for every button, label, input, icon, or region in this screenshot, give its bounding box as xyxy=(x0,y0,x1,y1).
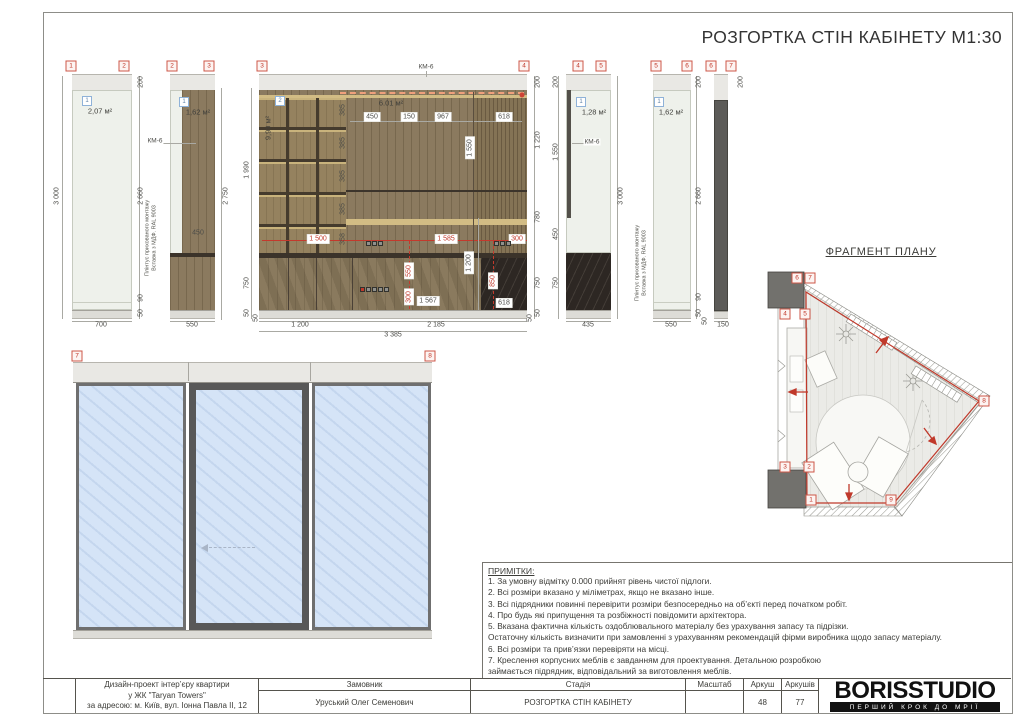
scale-value xyxy=(686,691,743,713)
elev78-sill xyxy=(73,630,432,639)
note-line: 4. Про будь які припущення та розбіжност… xyxy=(488,610,1012,621)
slide-direction-arrow-icon xyxy=(201,544,208,552)
slide-direction-line xyxy=(209,547,255,548)
elev78-ceiling xyxy=(73,362,432,383)
note-line: Остаточну кількість визначити при замовл… xyxy=(488,632,1012,643)
sheet-total-cell: Аркушів 77 xyxy=(781,679,818,713)
sheet-total-header: Аркушів xyxy=(782,679,818,691)
plan-wall-bottom xyxy=(804,507,902,516)
plan-title: ФРАГМЕНТ ПЛАНУ xyxy=(826,246,937,258)
project-info: Дизайн-проект інтер’єру квартири у ЖК "T… xyxy=(75,679,258,713)
elev23-lower-wood xyxy=(170,257,215,310)
note-line: 1. За умовну відмітку 0.000 прийнят ріве… xyxy=(488,576,1012,587)
elev34-slat-panel xyxy=(473,98,527,253)
note-line: 6. Всі розміри та прив’язки перевіряти н… xyxy=(488,644,1012,655)
elev78-ceiling-joint1 xyxy=(188,362,189,381)
elev23-base xyxy=(170,310,215,319)
elev34-led-shelf xyxy=(346,219,527,225)
notes-lines: 1. За умовну відмітку 0.000 прийнят ріве… xyxy=(488,576,1012,678)
client-cell: Замовник Уруський Олег Семенович xyxy=(258,679,470,713)
elev67-base xyxy=(714,311,728,319)
elev34-shelving xyxy=(259,98,346,256)
elev34-marble-block xyxy=(481,258,527,310)
plan-column-top xyxy=(768,272,804,308)
sheet-number-header: Аркуш xyxy=(744,679,781,691)
note-line: 3. Всі підрядники повинні перевірити роз… xyxy=(488,599,1012,610)
scale-cell: Масштаб xyxy=(685,679,743,713)
stage-cell: Стадія РОЗГОРТКА СТІН КАБІНЕТУ xyxy=(470,679,685,713)
project-line-2: у ЖК "Taryan Towers" xyxy=(76,691,258,702)
elev12-plinth-line xyxy=(73,302,131,303)
scale-header: Масштаб xyxy=(686,679,743,691)
project-line-1: Дизайн-проект інтер’єру квартири xyxy=(76,680,258,691)
studio-logo-name: BORISSTUDIO xyxy=(834,680,995,702)
notes-title: ПРИМІТКИ: xyxy=(488,566,1012,576)
plan-column-bottom xyxy=(768,470,806,508)
notes-block: ПРИМІТКИ: 1. За умовну відмітку 0.000 пр… xyxy=(482,562,1012,678)
window-panel-left xyxy=(76,383,186,630)
sheet-number-cell: Аркуш 48 xyxy=(743,679,781,713)
stage-value: РОЗГОРТКА СТІН КАБІНЕТУ xyxy=(471,691,685,713)
elev12-wall xyxy=(72,90,132,310)
window-panel-right xyxy=(312,383,431,630)
elev45-base xyxy=(566,310,611,319)
client-header: Замовник xyxy=(259,679,470,691)
page-title: РОЗГОРТКА СТІН КАБІНЕТУ М1:30 xyxy=(702,27,1002,48)
client-value: Уруський Олег Семенович xyxy=(259,691,470,713)
elev56-plinth-line xyxy=(654,302,690,303)
elev67-panel xyxy=(714,100,728,311)
studio-logo-tagline: ПЕРШИЙ КРОК ДО МРІЇ xyxy=(830,702,1000,712)
elev45-wall xyxy=(566,90,611,253)
studio-logo: BORISSTUDIO ПЕРШИЙ КРОК ДО МРІЇ xyxy=(818,679,1011,713)
elev78-ceiling-joint2 xyxy=(310,362,311,381)
elev12-base xyxy=(72,310,132,319)
elev56-base xyxy=(653,310,691,319)
elev56-wall xyxy=(653,90,691,310)
project-line-3: за адресою: м. Київ, вул. Іонна Павла II… xyxy=(76,701,258,712)
sheet-number-value: 48 xyxy=(744,691,781,713)
plan-side-table xyxy=(848,462,868,482)
note-line: 7. Креслення корпусних меблів є завдання… xyxy=(488,655,1012,666)
elev45-marble xyxy=(566,253,611,310)
plan-fragment-drawing xyxy=(754,260,1016,532)
elev45-panel-edge xyxy=(567,90,571,218)
elev67-top xyxy=(714,74,728,102)
note-line: 5. Вказана фактична кількість оздоблювал… xyxy=(488,621,1012,632)
title-block: Дизайн-проект інтер’єру квартири у ЖК "T… xyxy=(43,678,1011,712)
elev23-wood-panel xyxy=(182,90,215,253)
drawing-sheet: РОЗГОРТКА СТІН КАБІНЕТУ М1:30 xyxy=(0,0,1024,724)
plan-plant-1 xyxy=(836,324,856,344)
stage-header: Стадія xyxy=(471,679,685,691)
sheet-total-value: 77 xyxy=(782,691,818,713)
note-line: займається підрядник, відповідальний за … xyxy=(488,666,1012,677)
note-line: 2. Всі розміри вказано у міліметрах, якщ… xyxy=(488,587,1012,598)
elev34-base xyxy=(259,310,527,319)
window-panel-middle xyxy=(189,383,309,630)
